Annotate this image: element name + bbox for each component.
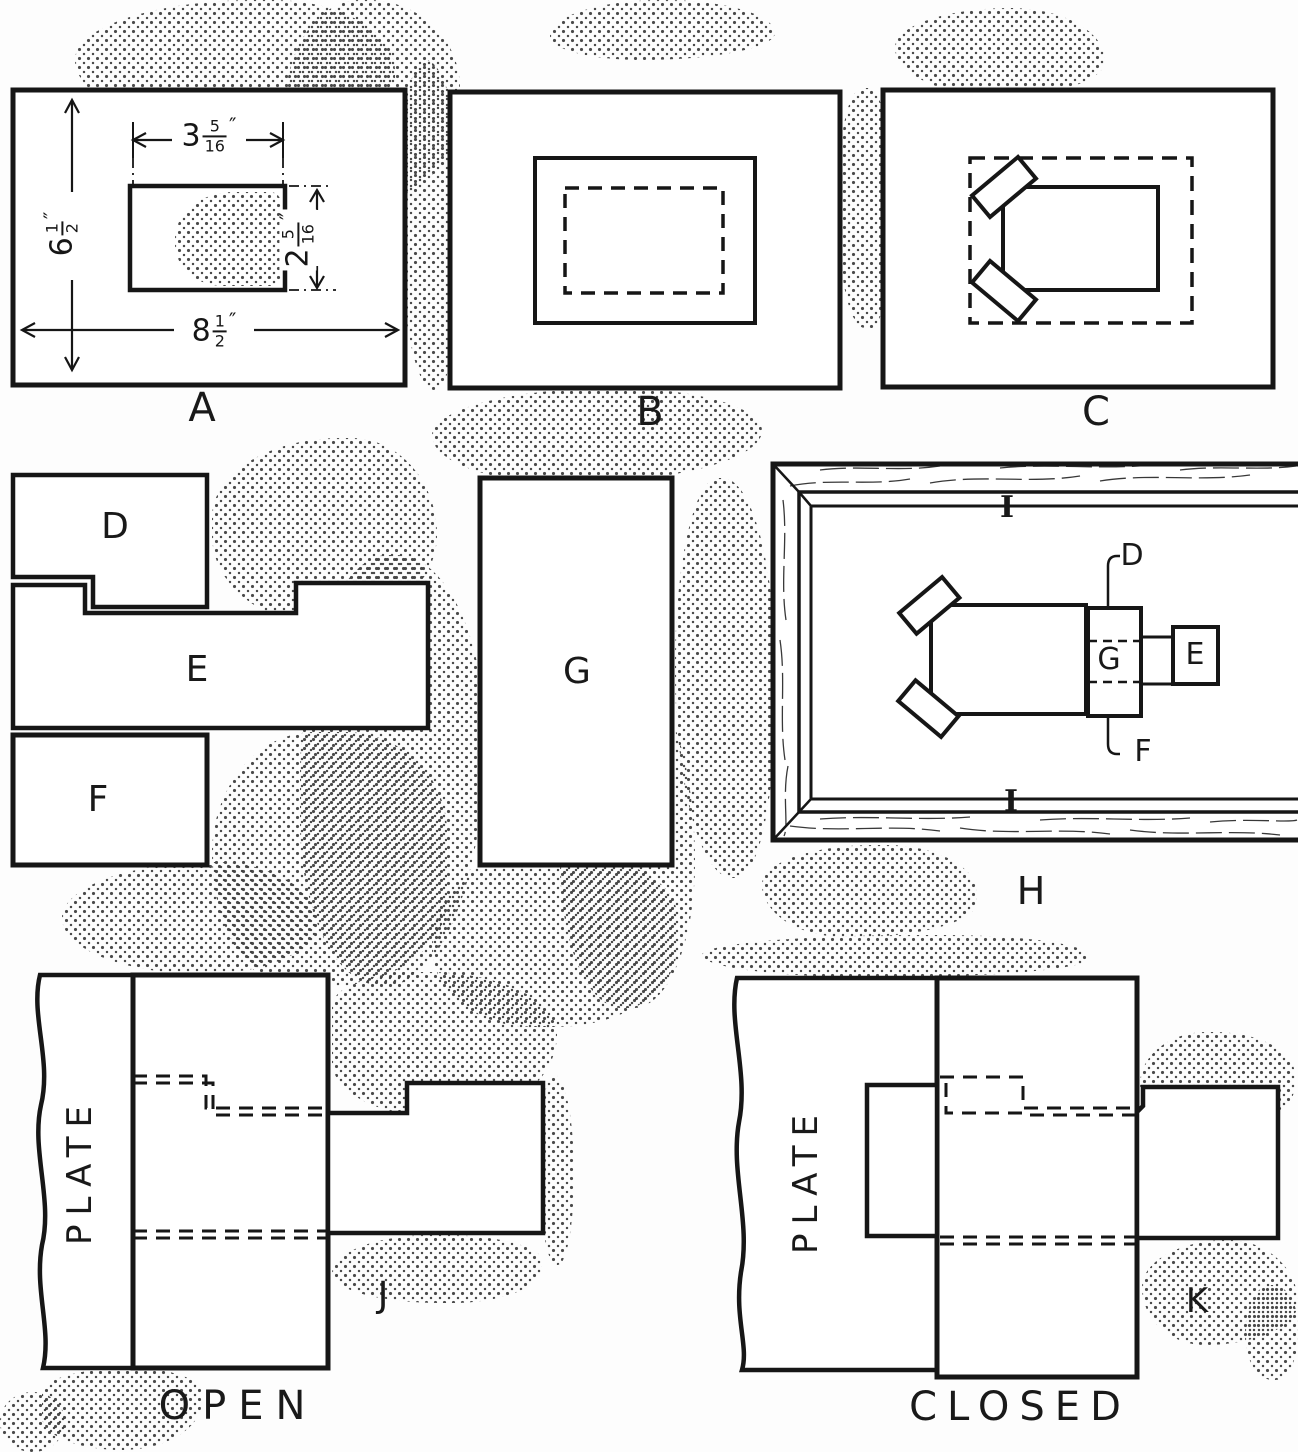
dim-unit: ″ [275, 213, 299, 220]
dim-denominator: 2 [61, 221, 81, 235]
dim-unit: ″ [229, 308, 236, 332]
panel-c-label: C [1082, 392, 1110, 432]
dim-numerator: 5 [279, 229, 297, 239]
diagram-page: A B C D E F G H J K D G E F I I PLATE PL… [0, 0, 1298, 1452]
dim-whole: 2 [281, 248, 316, 267]
dim-denominator: 2 [213, 330, 227, 350]
dim-unit: ″ [229, 113, 236, 137]
panel-b-label: B [636, 392, 663, 432]
panel-j-label: J [378, 1278, 389, 1314]
piece-e-label: E [186, 652, 209, 688]
dim-unit: ″ [39, 212, 63, 219]
closed-caption: CLOSED [909, 1387, 1131, 1427]
piece-f-label: F [88, 782, 109, 818]
piece-g-label: G [563, 654, 591, 690]
dim-whole: 8 [192, 314, 211, 349]
panel-h-label: H [1017, 872, 1046, 910]
frame-i-top-label: I [1000, 493, 1014, 523]
dim-cutout-height: 2516″ [279, 210, 316, 271]
panel-k-label: K [1186, 1284, 1208, 1318]
plate-k-text: PLATE [789, 1106, 823, 1254]
dim-plate-height: 612″ [43, 209, 80, 260]
open-caption: OPEN [159, 1386, 318, 1426]
piece-d-label: D [101, 509, 129, 545]
dim-numerator: 5 [210, 117, 220, 135]
dim-cutout-width: 3516″ [179, 117, 240, 154]
assembly-f-label: F [1134, 737, 1151, 767]
dim-whole: 3 [182, 119, 201, 154]
assembly-g-label: G [1097, 645, 1120, 675]
frame-i-bottom-label: I [1004, 787, 1018, 817]
dim-numerator: 1 [43, 223, 61, 233]
dim-plate-width: 812″ [189, 312, 240, 349]
assembly-e-label: E [1186, 640, 1205, 670]
dim-numerator: 1 [215, 312, 225, 330]
dim-denominator: 16 [203, 135, 227, 155]
panel-a-label: A [188, 388, 215, 428]
plate-j-text: PLATE [63, 1097, 97, 1245]
dim-denominator: 16 [297, 222, 317, 246]
assembly-d-label: D [1120, 541, 1143, 571]
dim-whole: 6 [45, 237, 80, 256]
